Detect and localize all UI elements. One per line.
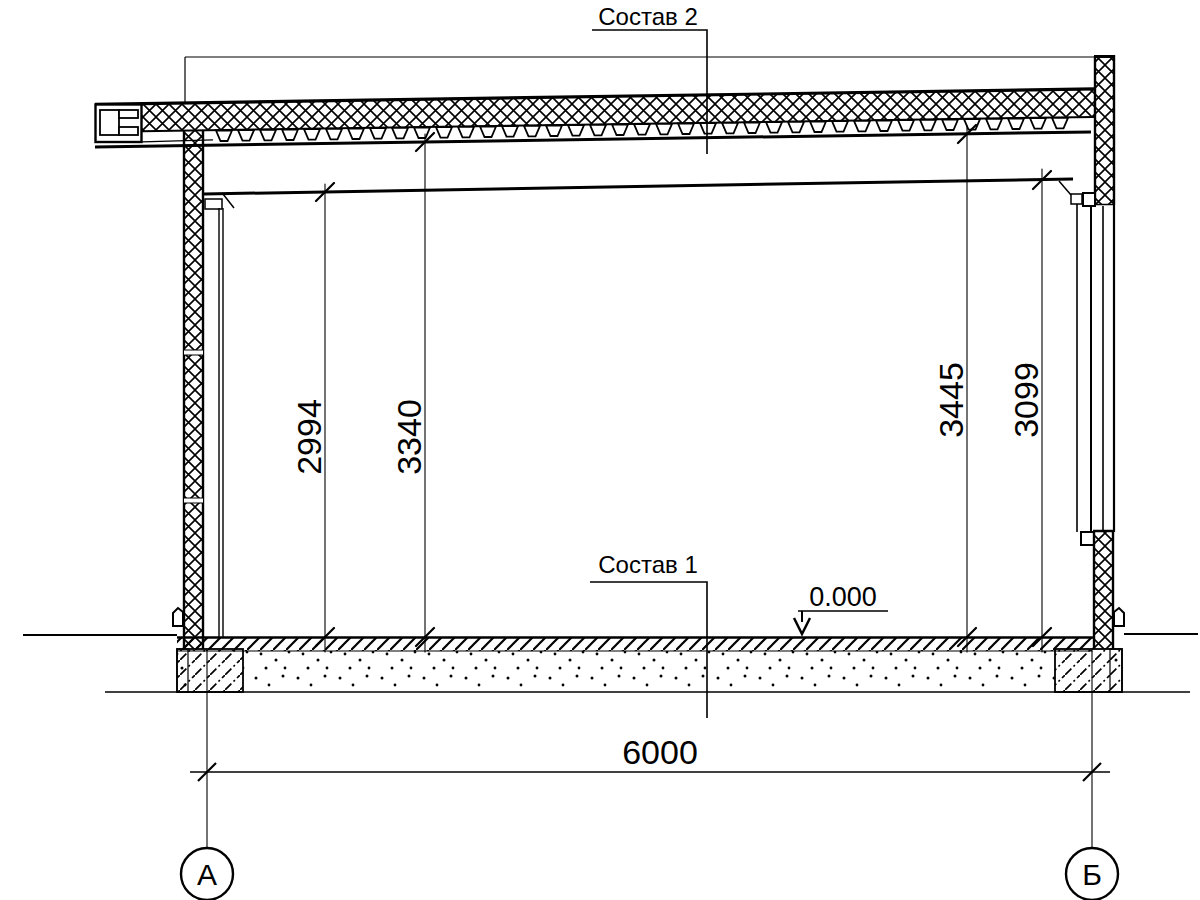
fascia-left-box — [100, 110, 119, 135]
dim-label: 2994 — [290, 399, 328, 475]
right-lower-wall-hatch — [1093, 530, 1114, 649]
roof-composition-leader-line — [592, 30, 707, 154]
building-section-drawing: Состав 2 Состав 1 0.000 2994 3340 3445 — [0, 0, 1200, 900]
dimension-2994: 2994 — [290, 183, 334, 652]
left-column-capital — [205, 199, 222, 209]
deck-rib — [590, 125, 606, 136]
deck-rib — [436, 127, 452, 138]
floor-assembly — [23, 634, 1198, 692]
joint-gap — [184, 498, 203, 503]
span-dim-label: 6000 — [622, 733, 698, 771]
roof-fascia — [96, 105, 142, 143]
right-wall-drip-edge — [1114, 608, 1124, 626]
deck-rib — [612, 125, 628, 136]
leader-floor-composition: Состав 1 — [590, 551, 707, 718]
elevation-value: 0.000 — [809, 582, 877, 612]
axis-label-a: А — [197, 858, 217, 891]
window-head-block — [1083, 193, 1095, 206]
deck-rib — [370, 128, 386, 139]
deck-rib — [480, 127, 496, 138]
dim-label: 3340 — [390, 399, 428, 475]
left-column — [205, 194, 234, 637]
roof-assembly — [95, 89, 1094, 147]
deck-rib — [942, 120, 958, 131]
fascia-bottom-strip — [119, 127, 138, 135]
deck-rib — [744, 123, 760, 134]
deck-rib — [1052, 118, 1068, 129]
roof-composition-label: Состав 2 — [598, 3, 698, 30]
elevation-mark: 0.000 — [794, 582, 888, 634]
deck-rib — [788, 122, 804, 133]
deck-rib — [568, 125, 584, 136]
right-column — [1059, 181, 1095, 206]
span-dimension: 6000 — [190, 733, 1110, 781]
window-sill-block — [1081, 532, 1094, 545]
deck-rib — [348, 129, 364, 140]
deck-rib — [1008, 119, 1024, 130]
deck-rib — [546, 126, 562, 137]
dimension-3340: 3340 — [390, 133, 434, 652]
left-plinth-strip — [177, 649, 188, 692]
deck-rib — [238, 130, 254, 141]
deck-rib — [810, 122, 826, 133]
left-wall — [173, 130, 234, 649]
left-wall-panel-joint — [183, 350, 204, 355]
deck-rib — [678, 124, 694, 135]
floor-composition-label: Состав 1 — [598, 551, 698, 578]
deck-rib — [326, 129, 342, 140]
deck-rib — [414, 128, 430, 139]
roof-beam-bottom-line — [204, 179, 1073, 194]
deck-rib — [458, 127, 474, 138]
deck-rib — [920, 120, 936, 131]
deck-rib — [216, 131, 232, 142]
deck-rib — [656, 124, 672, 135]
right-plinth-strip — [1110, 649, 1122, 692]
fascia-top-strip — [119, 110, 138, 118]
dim-label: 3099 — [1007, 362, 1045, 438]
deck-rib — [722, 123, 738, 134]
deck-rib — [700, 123, 716, 134]
dimension-3445: 3445 — [932, 125, 976, 652]
subbase-stipple-layer — [243, 651, 1055, 692]
dim-label: 3445 — [932, 362, 970, 438]
deck-rib — [392, 128, 408, 139]
deck-rib — [260, 130, 276, 141]
left-wall-panel-joint — [183, 498, 204, 503]
deck-rib — [282, 130, 298, 141]
right-column-capital — [1071, 194, 1082, 204]
deck-rib — [502, 126, 518, 137]
floor-slab-hatch — [177, 637, 1093, 651]
right-parapet-hatch — [1094, 55, 1115, 205]
right-capital-haunch — [1059, 181, 1071, 195]
deck-rib — [854, 121, 870, 132]
deck-rib — [832, 121, 848, 132]
deck-rib — [304, 129, 320, 140]
deck-rib — [876, 121, 892, 132]
deck-rib — [634, 124, 650, 135]
joint-gap — [184, 350, 203, 355]
left-capital-haunch — [223, 194, 234, 208]
left-wall-drip-edge — [173, 608, 183, 626]
deck-rib — [1030, 118, 1046, 129]
drawing-sheet: Состав 2 Состав 1 0.000 2994 3340 3445 — [0, 0, 1200, 900]
axis-label-b: Б — [1082, 858, 1102, 891]
deck-rib — [524, 126, 540, 137]
deck-rib — [898, 120, 914, 131]
dimension-3099: 3099 — [1007, 169, 1051, 652]
left-column-lines — [219, 208, 223, 637]
deck-rib — [986, 119, 1002, 130]
deck-rib — [766, 122, 782, 133]
right-wall — [1059, 55, 1124, 649]
window — [1077, 204, 1114, 545]
left-wall-hatch — [183, 130, 204, 649]
